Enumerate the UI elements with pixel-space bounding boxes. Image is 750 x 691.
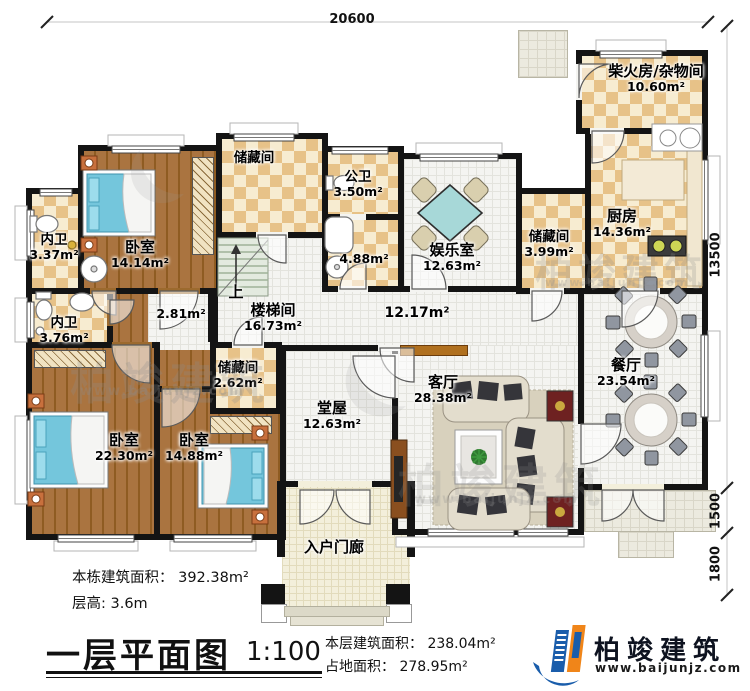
hall-area-label: 12.17m² — [384, 306, 449, 322]
room-label-stairwell: 楼梯间16.73m² — [244, 302, 302, 333]
footprint-area: 占地面积： 278.95m² — [325, 656, 468, 676]
brand-site: www.baijunjz.com — [595, 661, 742, 675]
room-label-bedroom-a: 卧室14.14m² — [111, 239, 169, 270]
corridor-area-label: 2.81m² — [156, 307, 205, 321]
room-label-tangwu: 堂屋12.63m² — [303, 400, 361, 431]
plan-overlay — [0, 0, 750, 640]
drawing-scale: 1:100 — [246, 637, 321, 667]
title-underline — [46, 671, 322, 678]
floorplan-canvas: 柴火房/杂物间10.60m² 厨房14.36m² 储藏间3.99m² 储藏间 公… — [0, 0, 750, 691]
kitchen-fixtures — [622, 124, 702, 286]
brand-logo-icon — [531, 622, 591, 688]
floor-height: 层高: 3.6m — [72, 592, 148, 613]
floor-area: 本层建筑面积： 238.04m² — [325, 633, 496, 653]
window-sills — [15, 40, 720, 551]
dimension-top: 20600 — [329, 12, 374, 27]
room-label-bath-a: 内卫3.37m² — [29, 233, 78, 262]
room-label-storage-mid: 储藏间2.62m² — [213, 361, 262, 390]
room-label-firewood: 柴火房/杂物间10.60m² — [608, 63, 703, 94]
window-mullions — [31, 55, 705, 539]
room-label-bedroom-c: 卧室14.88m² — [165, 432, 223, 463]
room-label-recreation: 娱乐室12.63m² — [423, 242, 481, 273]
room-label-storage-top: 储藏间 — [234, 151, 275, 166]
room-label-public-bath: 公卫3.50m² — [333, 170, 382, 199]
room-label-living: 客厅28.38m² — [414, 374, 472, 405]
room-label-storage-kitchen: 储藏间3.99m² — [524, 230, 573, 259]
room-label-dining: 餐厅23.54m² — [597, 357, 655, 388]
dimension-right-porch: 1500 — [709, 493, 724, 529]
windows — [27, 51, 708, 542]
dimension-right-main: 13500 — [709, 232, 724, 277]
room-label-kitchen: 厨房14.36m² — [593, 208, 651, 239]
dimension-right-step: 1800 — [709, 546, 724, 582]
page-title: 一层平面图 — [46, 628, 231, 677]
room-label-bath-b: 内卫3.76m² — [39, 316, 88, 345]
total-building-area: 本栋建筑面积： 392.38m² — [72, 566, 249, 587]
room-label-porch: 入户门廊 — [304, 539, 364, 556]
stairs-up-label: 上 — [228, 284, 243, 301]
dining-table — [606, 375, 696, 465]
room-label-washroom: 4.88m² — [339, 252, 388, 266]
room-label-bedroom-b: 卧室22.30m² — [95, 432, 153, 463]
